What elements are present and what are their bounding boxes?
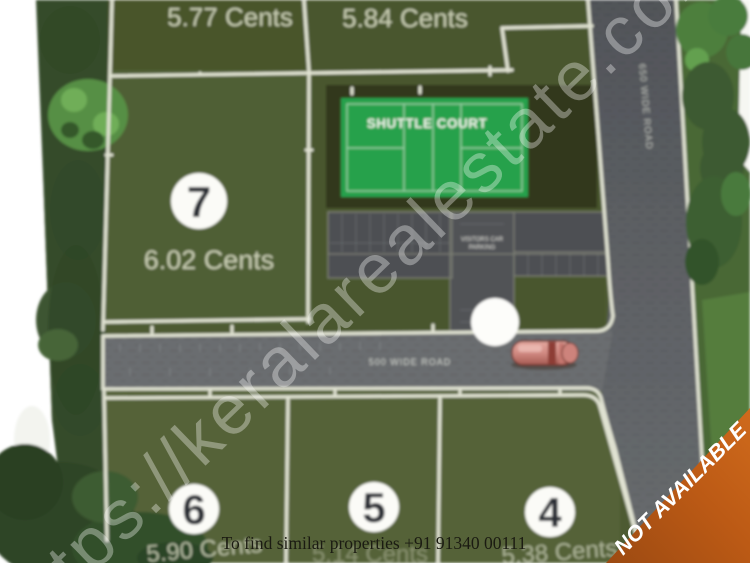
svg-text:6.02 Cents: 6.02 Cents bbox=[144, 245, 275, 275]
svg-text:VISITORS CAR: VISITORS CAR bbox=[461, 237, 504, 243]
svg-text:To find similar properties +91: To find similar properties +91 91340 001… bbox=[222, 533, 527, 553]
svg-text:5: 5 bbox=[362, 484, 385, 531]
svg-text:7: 7 bbox=[187, 178, 211, 227]
svg-text:500 WIDE ROAD: 500 WIDE ROAD bbox=[369, 357, 452, 367]
svg-text:5.84 Cents: 5.84 Cents bbox=[342, 3, 468, 33]
svg-text:4: 4 bbox=[538, 489, 562, 536]
svg-text:5.77 Cents: 5.77 Cents bbox=[167, 2, 293, 32]
svg-text:PARKING: PARKING bbox=[469, 245, 496, 251]
